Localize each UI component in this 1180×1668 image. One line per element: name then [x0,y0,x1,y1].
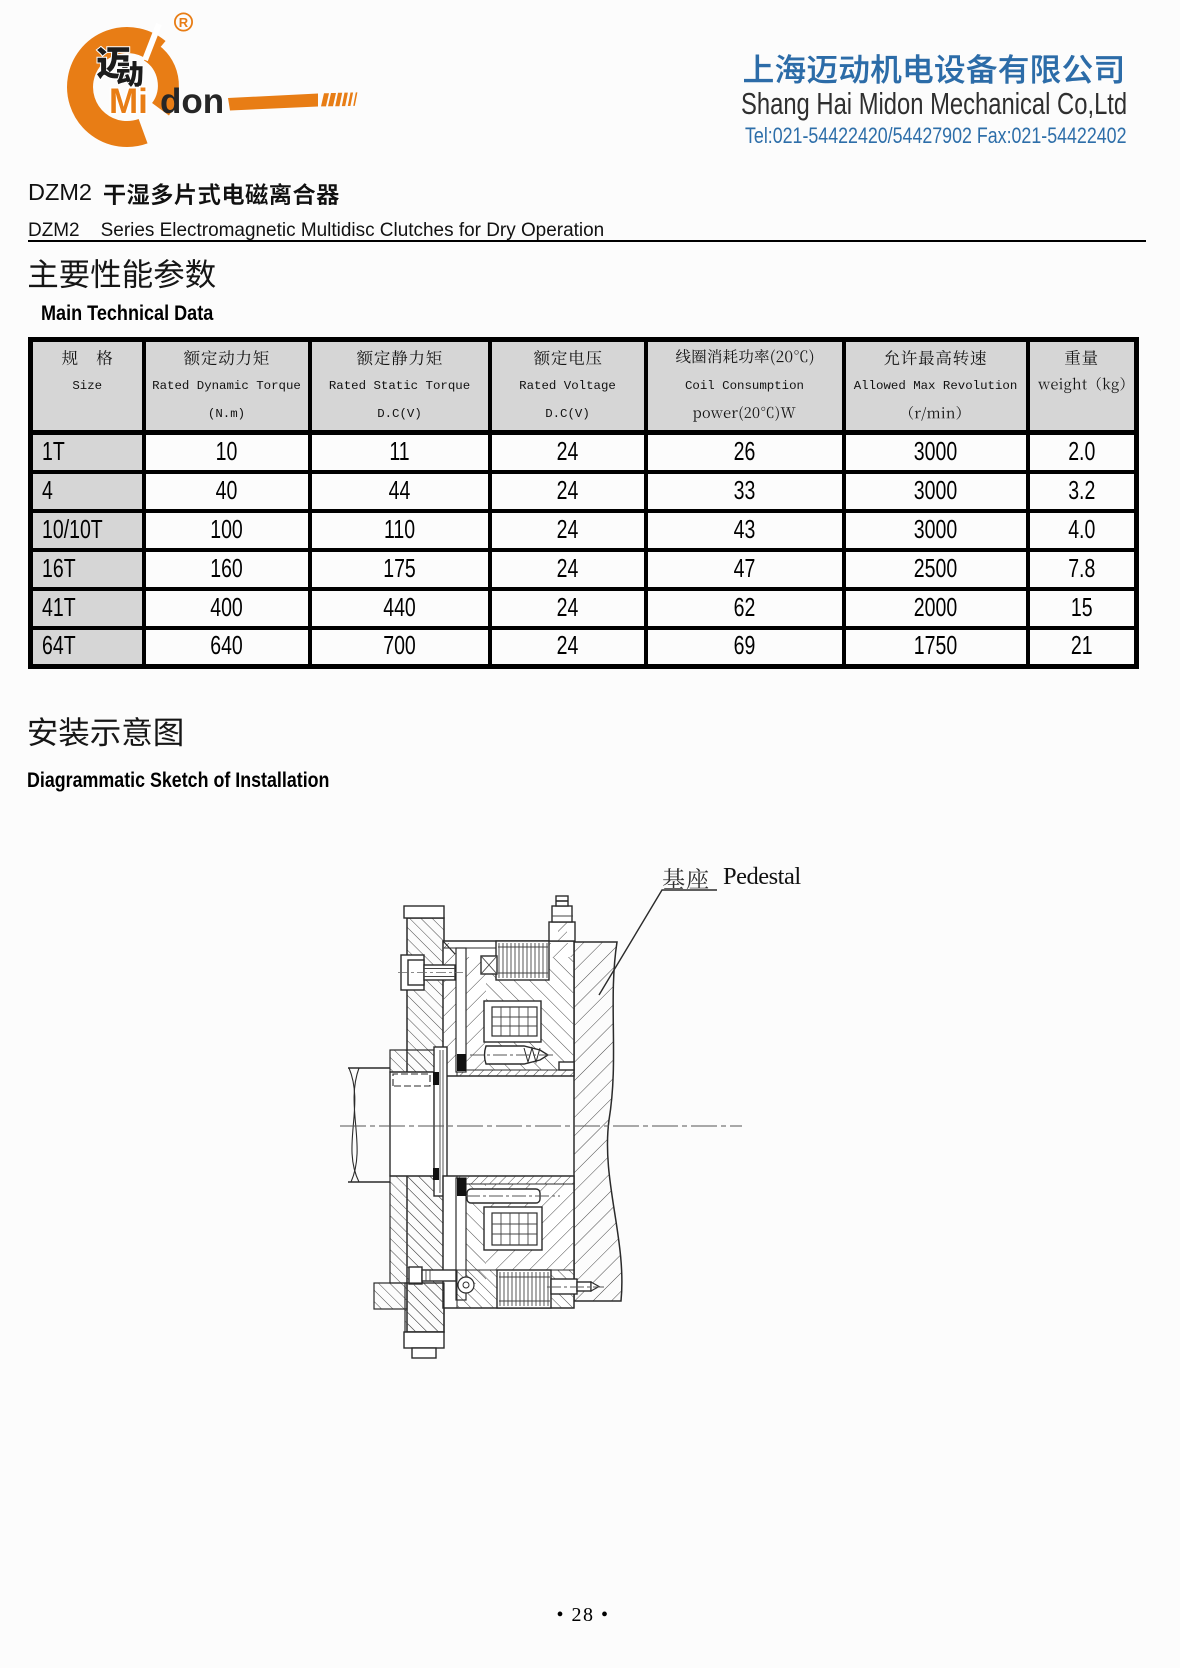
svg-text:don: don [160,82,224,121]
svg-text:Mi: Mi [109,82,148,121]
svg-text:Pedestal: Pedestal [723,863,801,890]
svg-text:R: R [179,15,189,30]
